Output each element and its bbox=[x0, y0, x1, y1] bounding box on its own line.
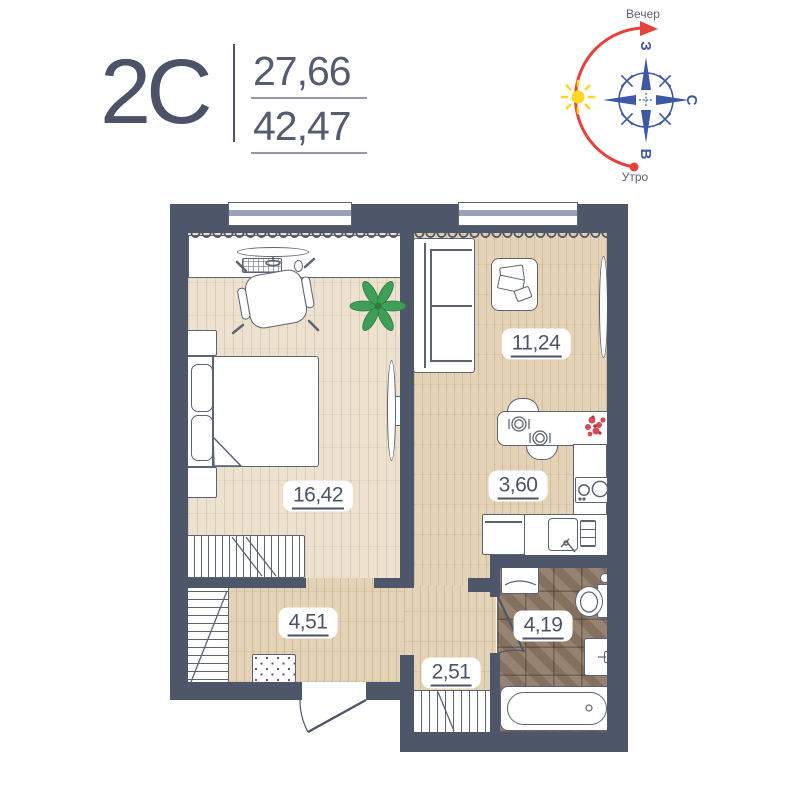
washing-machine bbox=[501, 566, 539, 594]
compass-letter-west: З bbox=[637, 41, 654, 50]
wall-bath-left-top bbox=[490, 555, 500, 597]
header-areas: 27,66 42,47 bbox=[251, 48, 367, 158]
sofa-armrest-line bbox=[432, 360, 472, 362]
monitor-icon bbox=[237, 247, 309, 257]
compass-letter-east: В bbox=[637, 149, 654, 160]
label-morning: Утро bbox=[622, 170, 649, 184]
compass-letter-north: С bbox=[683, 95, 700, 106]
toilet-bowl bbox=[575, 586, 603, 617]
wall-right bbox=[607, 204, 628, 752]
window-frame-band bbox=[229, 210, 351, 216]
stove bbox=[575, 477, 609, 503]
pillow bbox=[191, 364, 213, 412]
sofa-seat-split bbox=[432, 305, 472, 307]
wall-bottom-right bbox=[402, 732, 628, 752]
wall-hall-kitchen-stub bbox=[468, 578, 490, 592]
compass-rose: З С В Вечер Утро bbox=[555, 2, 745, 197]
curtain-bedroom bbox=[190, 233, 402, 244]
wardrobe-corridor bbox=[184, 586, 229, 689]
fridge-handle bbox=[485, 521, 522, 523]
wardrobe-bedroom bbox=[186, 535, 305, 578]
wall-bottom-left bbox=[170, 682, 302, 700]
bathtub-inner bbox=[507, 692, 607, 725]
room-label-bathroom: 4,19 bbox=[514, 611, 573, 642]
compass-arrows bbox=[603, 57, 689, 143]
nightstand-bottom bbox=[184, 467, 217, 498]
sun-icon bbox=[562, 81, 594, 113]
total-area-value: 42,47 bbox=[251, 103, 367, 154]
shoe-rack bbox=[412, 690, 493, 733]
curtain-living bbox=[414, 233, 610, 244]
blanket-edge bbox=[212, 357, 214, 466]
pillow bbox=[191, 415, 213, 461]
room-label-living: 11,24 bbox=[502, 329, 571, 360]
nightstand-top bbox=[184, 330, 217, 356]
wall-left bbox=[170, 204, 188, 700]
wall-kitchen-bath bbox=[490, 555, 607, 568]
tv-bedroom-icon bbox=[387, 360, 396, 461]
wall-bedroom-bottom bbox=[188, 578, 306, 588]
room-label-kitchen: 3,60 bbox=[489, 471, 548, 502]
window-living bbox=[458, 202, 578, 226]
living-area-value: 27,66 bbox=[251, 48, 367, 99]
window-frame-band bbox=[459, 210, 577, 216]
wall-bath-left-bottom bbox=[490, 653, 500, 732]
wall-hallway-vert bbox=[400, 655, 414, 752]
room-label-bedroom: 16,42 bbox=[283, 481, 353, 512]
plan-type-title: 2С bbox=[100, 46, 208, 138]
wall-stub bbox=[374, 578, 414, 588]
floor-plan-page: 2С 27,66 42,47 bbox=[0, 0, 800, 800]
kitchen-sink bbox=[548, 518, 578, 551]
entrance-door-icon bbox=[300, 700, 366, 732]
wall-center-divider bbox=[400, 233, 414, 580]
window-bedroom bbox=[228, 202, 352, 226]
dish-rack bbox=[580, 520, 596, 547]
arc-arrowhead-icon bbox=[640, 21, 658, 36]
label-evening: Вечер bbox=[626, 7, 660, 21]
sofa-armrest-line bbox=[432, 249, 472, 251]
dining-table bbox=[497, 411, 613, 446]
room-label-hallway: 2,51 bbox=[422, 658, 481, 689]
room-label-corridor: 4,51 bbox=[279, 608, 338, 639]
header-divider bbox=[233, 44, 235, 142]
sofa-back-line bbox=[424, 243, 426, 368]
